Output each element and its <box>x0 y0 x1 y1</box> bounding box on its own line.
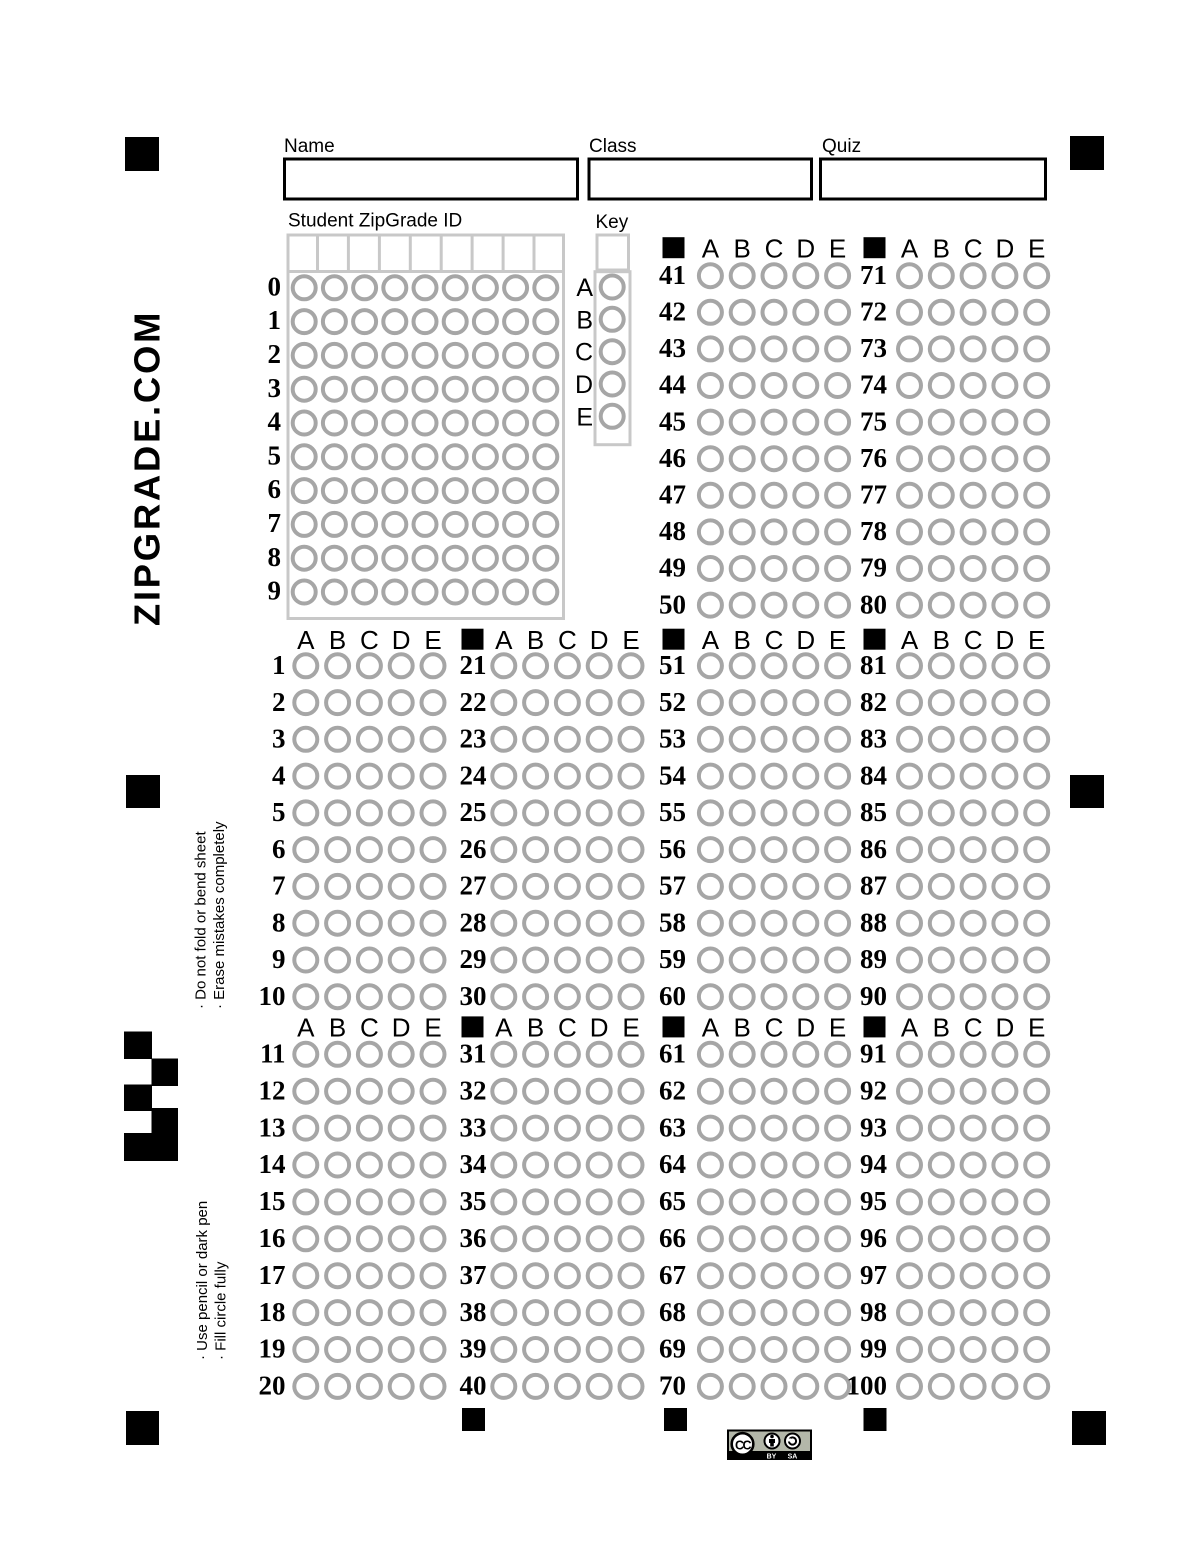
svg-text:71: 71 <box>860 260 887 290</box>
svg-text:D: D <box>996 1013 1015 1043</box>
svg-text:C: C <box>964 625 983 655</box>
svg-text:1: 1 <box>268 305 282 335</box>
svg-text:· Do not fold or bend sheet: · Do not fold or bend sheet <box>193 831 210 1009</box>
svg-text:69: 69 <box>659 1334 686 1364</box>
svg-text:74: 74 <box>860 370 887 400</box>
svg-text:93: 93 <box>860 1112 887 1142</box>
svg-text:9: 9 <box>268 576 282 606</box>
svg-text:4: 4 <box>272 760 286 790</box>
svg-text:35: 35 <box>460 1186 487 1216</box>
svg-text:B: B <box>329 1013 346 1043</box>
svg-text:27: 27 <box>460 871 487 901</box>
svg-text:A: A <box>495 1013 513 1043</box>
svg-text:5: 5 <box>268 440 282 470</box>
svg-text:SA: SA <box>788 1454 798 1461</box>
svg-text:67: 67 <box>659 1260 686 1290</box>
svg-text:D: D <box>392 1013 411 1043</box>
svg-text:84: 84 <box>860 760 887 790</box>
svg-text:26: 26 <box>460 834 487 864</box>
svg-text:6: 6 <box>272 834 286 864</box>
svg-text:E: E <box>1028 1013 1045 1043</box>
svg-text:36: 36 <box>460 1223 487 1253</box>
svg-text:B: B <box>527 625 544 655</box>
svg-text:80: 80 <box>860 589 887 619</box>
svg-text:E: E <box>576 403 593 431</box>
svg-text:33: 33 <box>460 1112 487 1142</box>
svg-text:6: 6 <box>268 474 282 504</box>
svg-text:41: 41 <box>659 260 686 290</box>
svg-text:52: 52 <box>659 687 686 717</box>
svg-text:18: 18 <box>259 1297 286 1327</box>
svg-text:100: 100 <box>847 1371 888 1401</box>
svg-text:77: 77 <box>860 480 887 510</box>
svg-text:19: 19 <box>259 1334 286 1364</box>
svg-text:89: 89 <box>860 944 887 974</box>
svg-text:A: A <box>702 625 720 655</box>
svg-text:55: 55 <box>659 797 686 827</box>
svg-text:47: 47 <box>659 480 686 510</box>
svg-text:42: 42 <box>659 297 686 327</box>
svg-text:2: 2 <box>272 687 286 717</box>
svg-text:9: 9 <box>272 944 286 974</box>
svg-text:24: 24 <box>460 760 487 790</box>
svg-text:8: 8 <box>272 907 286 937</box>
svg-text:A: A <box>297 1013 315 1043</box>
svg-text:BY: BY <box>767 1454 777 1461</box>
svg-text:Student ZipGrade ID: Student ZipGrade ID <box>288 211 462 232</box>
svg-text:D: D <box>796 625 815 655</box>
svg-text:D: D <box>392 625 411 655</box>
svg-text:3: 3 <box>272 724 286 754</box>
svg-text:A: A <box>901 625 919 655</box>
svg-text:Name: Name <box>284 136 335 157</box>
svg-text:98: 98 <box>860 1297 887 1327</box>
svg-text:32: 32 <box>460 1075 487 1105</box>
svg-text:60: 60 <box>659 981 686 1011</box>
svg-text:54: 54 <box>659 760 686 790</box>
svg-text:E: E <box>424 1013 441 1043</box>
svg-text:95: 95 <box>860 1186 887 1216</box>
svg-text:48: 48 <box>659 516 686 546</box>
svg-text:C: C <box>964 1013 983 1043</box>
svg-text:A: A <box>901 1013 919 1043</box>
svg-text:4: 4 <box>268 407 282 437</box>
svg-text:A: A <box>495 625 513 655</box>
svg-text:E: E <box>1028 233 1045 263</box>
svg-text:86: 86 <box>860 834 887 864</box>
svg-text:72: 72 <box>860 297 887 327</box>
svg-text:63: 63 <box>659 1112 686 1142</box>
svg-text:Quiz: Quiz <box>822 136 861 157</box>
svg-text:88: 88 <box>860 907 887 937</box>
svg-text:78: 78 <box>860 516 887 546</box>
svg-text:91: 91 <box>860 1039 887 1069</box>
svg-text:22: 22 <box>460 687 487 717</box>
svg-text:34: 34 <box>460 1149 487 1179</box>
svg-text:E: E <box>829 233 846 263</box>
svg-text:13: 13 <box>259 1112 286 1142</box>
svg-text:68: 68 <box>659 1297 686 1327</box>
svg-text:66: 66 <box>659 1223 686 1253</box>
svg-text:83: 83 <box>860 724 887 754</box>
svg-text:44: 44 <box>659 370 686 400</box>
svg-text:E: E <box>829 625 846 655</box>
svg-text:31: 31 <box>460 1039 487 1069</box>
svg-text:ZIPGRADE.COM: ZIPGRADE.COM <box>127 310 168 626</box>
svg-text:96: 96 <box>860 1223 887 1253</box>
svg-text:79: 79 <box>860 553 887 583</box>
svg-text:45: 45 <box>659 406 686 436</box>
svg-text:11: 11 <box>260 1039 286 1069</box>
svg-text:10: 10 <box>259 981 286 1011</box>
svg-text:A: A <box>702 1013 720 1043</box>
svg-text:C: C <box>765 233 784 263</box>
svg-text:Class: Class <box>589 136 637 157</box>
svg-text:7: 7 <box>268 508 282 538</box>
svg-text:51: 51 <box>659 650 686 680</box>
svg-text:A: A <box>702 233 720 263</box>
svg-text:D: D <box>590 1013 609 1043</box>
svg-text:39: 39 <box>460 1334 487 1364</box>
svg-text:E: E <box>424 625 441 655</box>
svg-text:C: C <box>360 625 379 655</box>
svg-text:62: 62 <box>659 1075 686 1105</box>
svg-text:17: 17 <box>259 1260 286 1290</box>
svg-text:16: 16 <box>259 1223 286 1253</box>
svg-text:12: 12 <box>259 1075 286 1105</box>
svg-text:E: E <box>1028 625 1045 655</box>
svg-text:46: 46 <box>659 443 686 473</box>
svg-text:29: 29 <box>460 944 487 974</box>
svg-text:B: B <box>527 1013 544 1043</box>
svg-text:28: 28 <box>460 907 487 937</box>
svg-text:A: A <box>576 274 593 302</box>
svg-text:7: 7 <box>272 871 286 901</box>
svg-text:50: 50 <box>659 589 686 619</box>
svg-text:64: 64 <box>659 1149 686 1179</box>
svg-text:D: D <box>796 1013 815 1043</box>
svg-text:D: D <box>575 371 593 399</box>
svg-text:· Use pencil or dark pen: · Use pencil or dark pen <box>194 1201 211 1360</box>
svg-text:15: 15 <box>259 1186 286 1216</box>
svg-text:A: A <box>297 625 315 655</box>
svg-text:21: 21 <box>460 650 487 680</box>
svg-text:30: 30 <box>460 981 487 1011</box>
svg-text:B: B <box>734 625 751 655</box>
svg-text:14: 14 <box>259 1149 286 1179</box>
svg-text:75: 75 <box>860 406 887 436</box>
svg-text:B: B <box>576 306 593 334</box>
svg-text:B: B <box>329 625 346 655</box>
svg-text:38: 38 <box>460 1297 487 1327</box>
svg-text:56: 56 <box>659 834 686 864</box>
svg-text:43: 43 <box>659 333 686 363</box>
svg-text:70: 70 <box>659 1371 686 1401</box>
svg-text:20: 20 <box>259 1371 286 1401</box>
svg-text:81: 81 <box>860 650 887 680</box>
svg-text:59: 59 <box>659 944 686 974</box>
svg-text:53: 53 <box>659 724 686 754</box>
svg-text:23: 23 <box>460 724 487 754</box>
svg-text:0: 0 <box>268 271 282 301</box>
svg-text:37: 37 <box>460 1260 487 1290</box>
svg-text:C: C <box>575 339 593 367</box>
svg-text:85: 85 <box>860 797 887 827</box>
svg-text:C: C <box>765 625 784 655</box>
svg-text:B: B <box>933 233 950 263</box>
svg-text:25: 25 <box>460 797 487 827</box>
svg-text:1: 1 <box>272 650 286 680</box>
svg-text:94: 94 <box>860 1149 887 1179</box>
svg-text:3: 3 <box>268 373 282 403</box>
svg-text:B: B <box>734 233 751 263</box>
svg-text:87: 87 <box>860 871 887 901</box>
svg-text:D: D <box>590 625 609 655</box>
svg-text:57: 57 <box>659 871 686 901</box>
svg-text:C: C <box>558 1013 577 1043</box>
svg-text:E: E <box>622 1013 639 1043</box>
svg-text:8: 8 <box>268 542 282 572</box>
svg-text:90: 90 <box>860 981 887 1011</box>
svg-text:76: 76 <box>860 443 887 473</box>
svg-text:97: 97 <box>860 1260 887 1290</box>
svg-text:B: B <box>933 625 950 655</box>
svg-text:E: E <box>622 625 639 655</box>
svg-text:5: 5 <box>272 797 286 827</box>
svg-text:82: 82 <box>860 687 887 717</box>
svg-text:· Fill circle fully: · Fill circle fully <box>213 1261 230 1360</box>
svg-text:99: 99 <box>860 1334 887 1364</box>
svg-text:49: 49 <box>659 553 686 583</box>
svg-text:CC: CC <box>735 1439 752 1453</box>
svg-text:E: E <box>829 1013 846 1043</box>
svg-text:A: A <box>901 233 919 263</box>
svg-text:C: C <box>558 625 577 655</box>
svg-text:40: 40 <box>460 1371 487 1401</box>
svg-text:73: 73 <box>860 333 887 363</box>
svg-text:· Erase mistakes completely: · Erase mistakes completely <box>211 821 228 1009</box>
svg-text:D: D <box>996 625 1015 655</box>
svg-text:Key: Key <box>596 212 629 233</box>
svg-text:B: B <box>933 1013 950 1043</box>
svg-text:65: 65 <box>659 1186 686 1216</box>
svg-text:2: 2 <box>268 339 282 369</box>
svg-text:D: D <box>796 233 815 263</box>
svg-text:58: 58 <box>659 907 686 937</box>
svg-text:61: 61 <box>659 1039 686 1069</box>
svg-text:C: C <box>360 1013 379 1043</box>
svg-text:B: B <box>734 1013 751 1043</box>
svg-text:C: C <box>765 1013 784 1043</box>
svg-text:D: D <box>996 233 1015 263</box>
svg-text:C: C <box>964 233 983 263</box>
svg-text:92: 92 <box>860 1075 887 1105</box>
